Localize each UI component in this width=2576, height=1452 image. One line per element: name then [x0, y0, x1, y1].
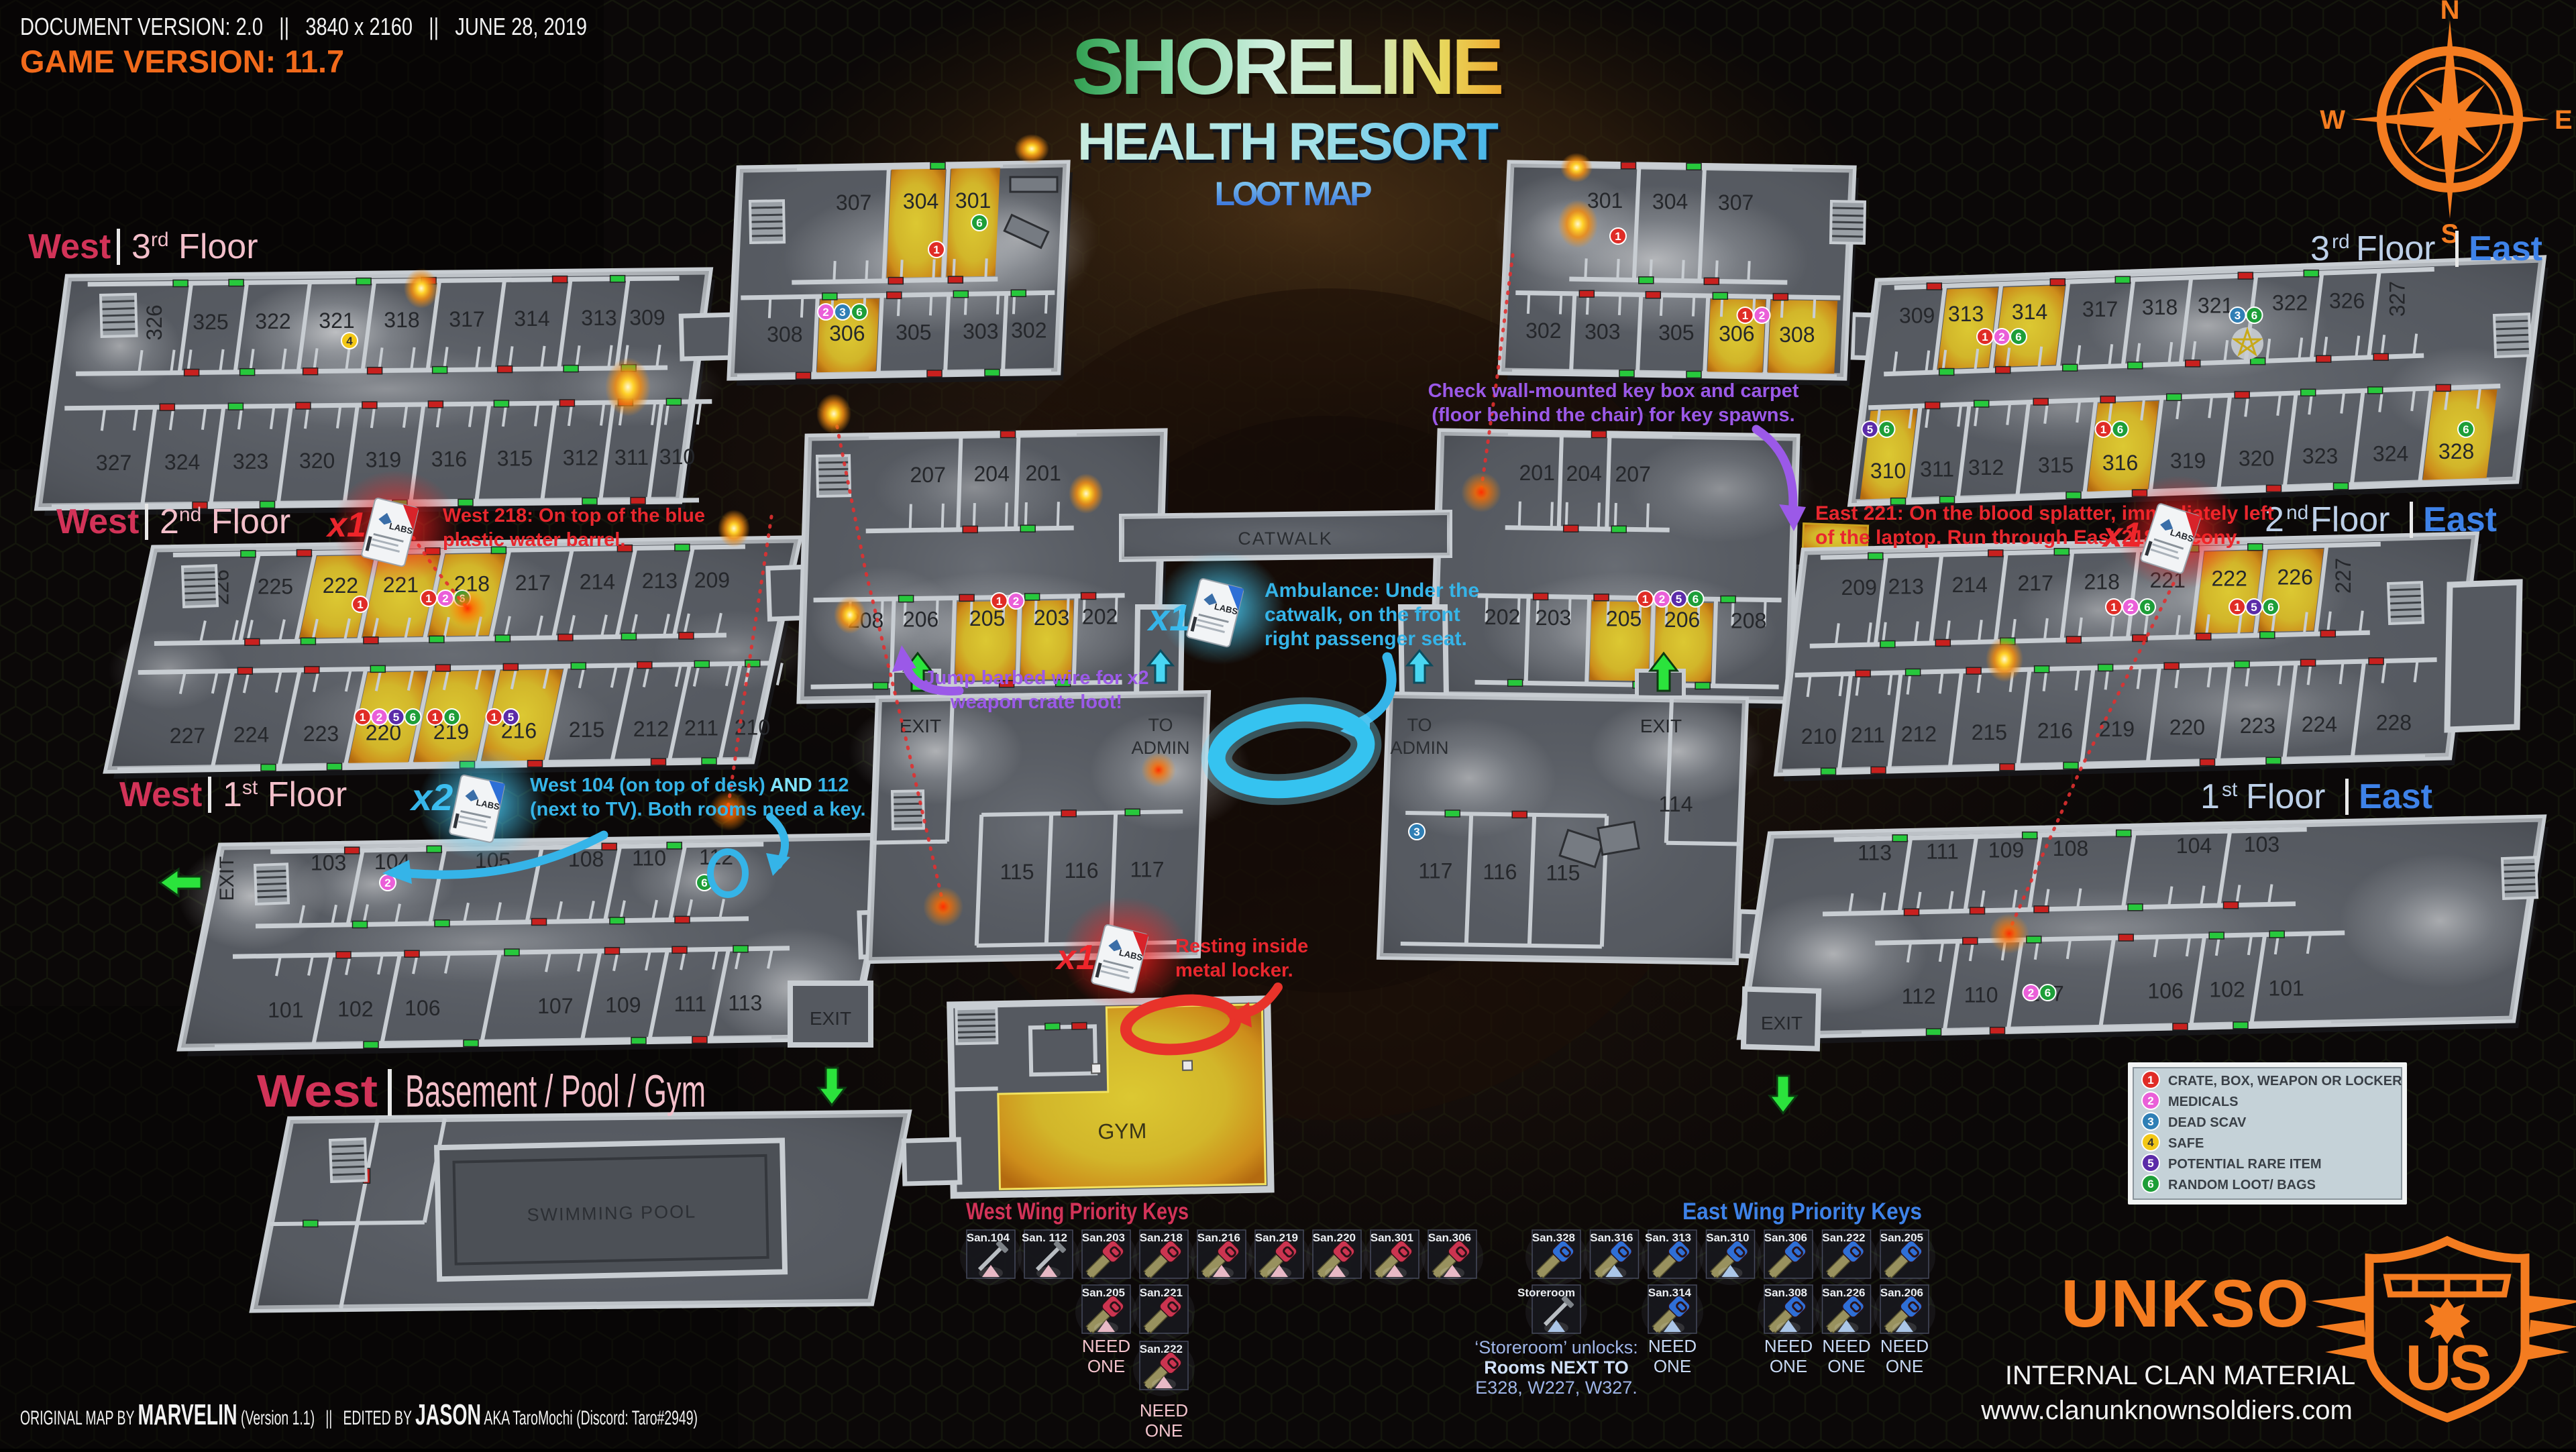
svg-text:6: 6: [2267, 601, 2273, 614]
svg-text:6: 6: [856, 306, 862, 319]
svg-text:322: 322: [2272, 291, 2308, 315]
svg-text:103: 103: [2244, 832, 2279, 856]
svg-text:TO: TO: [1407, 715, 1432, 735]
svg-text:4: 4: [346, 335, 353, 347]
svg-text:W: W: [2320, 105, 2345, 135]
svg-text:318: 318: [2142, 295, 2178, 319]
svg-text:314: 314: [2012, 300, 2047, 324]
svg-text:310: 310: [1870, 459, 1906, 483]
svg-text:EXIT: EXIT: [216, 856, 238, 901]
svg-text:207: 207: [910, 463, 946, 487]
svg-text:San.205: San.205: [1082, 1286, 1125, 1299]
svg-text:326: 326: [2329, 289, 2365, 313]
svg-text:313: 313: [581, 306, 616, 330]
svg-text:San.328: San.328: [1532, 1231, 1575, 1244]
svg-text:112: 112: [1902, 984, 1936, 1008]
svg-text:UNKSO: UNKSO: [2061, 1266, 2310, 1341]
svg-text:San.205: San.205: [1880, 1231, 1923, 1244]
svg-text:San.222: San.222: [1140, 1343, 1183, 1355]
svg-text:328: 328: [2438, 439, 2474, 463]
svg-text:111: 111: [1926, 839, 1959, 863]
svg-text:N: N: [2440, 0, 2460, 25]
svg-text:311: 311: [1920, 457, 1954, 482]
svg-text:117: 117: [1418, 859, 1452, 883]
svg-text:307: 307: [836, 190, 871, 215]
svg-text:Rooms NEXT TO: Rooms NEXT TO: [1484, 1357, 1629, 1378]
svg-text:213: 213: [642, 569, 678, 593]
svg-text:108: 108: [2053, 836, 2088, 860]
svg-text:312: 312: [563, 446, 598, 470]
svg-text:5: 5: [508, 711, 514, 724]
svg-text:307: 307: [1718, 190, 1754, 215]
svg-text:5: 5: [2251, 601, 2257, 614]
svg-text:2: 2: [1759, 309, 1765, 322]
svg-text:111: 111: [674, 992, 706, 1016]
svg-text:320: 320: [2239, 446, 2274, 470]
svg-text:210: 210: [735, 716, 770, 740]
svg-text:nd: nd: [2286, 502, 2308, 524]
svg-text:Resting inside: Resting inside: [1175, 936, 1308, 957]
svg-text:5: 5: [1676, 593, 1682, 606]
svg-text:201: 201: [1026, 461, 1061, 486]
svg-text:321: 321: [2198, 293, 2233, 317]
svg-text:SWIMMING POOL: SWIMMING POOL: [527, 1201, 696, 1225]
svg-text:(next to TV). Both rooms need: (next to TV). Both rooms need a key.: [530, 799, 866, 820]
svg-text:‘Storeroom’ unlocks:: ‘Storeroom’ unlocks:: [1474, 1337, 1638, 1357]
svg-text:Jump barbed wire for x2: Jump barbed wire for x2: [924, 667, 1148, 689]
svg-text:311: 311: [614, 445, 649, 469]
svg-text:2: 2: [1013, 595, 1019, 608]
svg-text:211: 211: [684, 716, 718, 740]
svg-text:NEED: NEED: [1764, 1336, 1813, 1356]
svg-text:318: 318: [384, 308, 419, 332]
svg-text:205: 205: [969, 606, 1005, 630]
svg-text:6: 6: [2045, 987, 2051, 999]
svg-text:106: 106: [2147, 979, 2183, 1003]
svg-text:310: 310: [659, 445, 695, 469]
svg-text:202: 202: [1485, 605, 1520, 629]
svg-text:ONE: ONE: [1145, 1420, 1183, 1441]
svg-text:ONE: ONE: [1827, 1356, 1865, 1376]
svg-text:DEAD SCAV: DEAD SCAV: [2168, 1115, 2247, 1130]
svg-text:207: 207: [1615, 462, 1651, 486]
svg-text:212: 212: [633, 717, 669, 741]
svg-text:1: 1: [933, 243, 939, 256]
svg-text:st: st: [2222, 779, 2238, 801]
svg-text:304: 304: [903, 189, 938, 213]
svg-text:303: 303: [1585, 319, 1620, 343]
svg-text:3: 3: [1413, 826, 1419, 838]
svg-text:317: 317: [449, 307, 484, 331]
svg-text:327: 327: [96, 451, 131, 475]
svg-text:MEDICALS: MEDICALS: [2168, 1095, 2238, 1109]
svg-text:East Wing Priority Keys: East Wing Priority Keys: [1682, 1198, 1922, 1225]
svg-text:SHORELINE: SHORELINE: [1072, 23, 1505, 111]
svg-text:1: 1: [2100, 423, 2106, 436]
svg-text:222: 222: [323, 573, 358, 598]
svg-text:San.219: San.219: [1255, 1231, 1298, 1244]
svg-text:316: 316: [431, 447, 467, 471]
svg-text:ONE: ONE: [1654, 1356, 1691, 1376]
svg-text:San.221: San.221: [1140, 1286, 1183, 1299]
svg-text:NEED: NEED: [1140, 1400, 1188, 1420]
svg-text:LOOT MAP: LOOT MAP: [1215, 175, 1373, 213]
svg-text:323: 323: [2302, 444, 2338, 468]
svg-text:1: 1: [2234, 601, 2240, 614]
svg-text:6: 6: [2463, 423, 2469, 436]
svg-text:313: 313: [1948, 302, 1984, 326]
svg-text:226: 226: [2277, 565, 2313, 589]
svg-text:right passenger seat.: right passenger seat.: [1265, 628, 1467, 650]
svg-text:107: 107: [537, 994, 573, 1018]
svg-text:223: 223: [303, 722, 339, 746]
svg-text:metal locker.: metal locker.: [1175, 960, 1293, 981]
svg-text:DOCUMENT VERSION: 2.0 || 3: DOCUMENT VERSION: 2.0 || 3840 x 2160 || …: [20, 13, 587, 40]
svg-text:San. 313: San. 313: [1645, 1231, 1691, 1244]
svg-text:215: 215: [569, 718, 604, 742]
svg-text:210: 210: [1801, 724, 1837, 748]
svg-text:209: 209: [1841, 575, 1877, 600]
svg-text:215: 215: [1972, 720, 2007, 744]
svg-text:1: 1: [2147, 1074, 2153, 1086]
svg-text:San. 112: San. 112: [1022, 1231, 1067, 1244]
svg-text:216: 216: [2037, 718, 2073, 742]
svg-text:San.226: San.226: [1822, 1286, 1865, 1299]
svg-text:209: 209: [694, 568, 730, 592]
svg-text:West 104 (on top of desk) AND: West 104 (on top of desk) AND 112: [530, 775, 849, 796]
svg-text:San.308: San.308: [1764, 1286, 1807, 1299]
svg-text:211: 211: [1851, 723, 1885, 747]
svg-text:217: 217: [2018, 571, 2053, 596]
svg-text:309: 309: [1899, 304, 1935, 328]
svg-text:6: 6: [2015, 331, 2021, 343]
svg-text:110: 110: [632, 846, 666, 870]
svg-text:1: 1: [2110, 601, 2116, 614]
svg-text:weapon crate loot!: weapon crate loot!: [950, 691, 1122, 713]
svg-text:San.203: San.203: [1082, 1231, 1125, 1244]
svg-text:220: 220: [2169, 716, 2205, 740]
svg-text:ADMIN: ADMIN: [1391, 738, 1449, 758]
svg-text:324: 324: [164, 450, 200, 474]
svg-text:6: 6: [449, 711, 455, 724]
svg-text:306: 306: [1719, 322, 1754, 346]
svg-text:304: 304: [1652, 190, 1688, 214]
svg-text:San.206: San.206: [1880, 1286, 1923, 1299]
svg-text:3: 3: [2310, 229, 2330, 268]
svg-text:1: 1: [996, 595, 1002, 608]
svg-text:San.222: San.222: [1822, 1231, 1865, 1244]
svg-text:227: 227: [170, 724, 205, 748]
svg-text:214: 214: [580, 570, 615, 594]
svg-text:INTERNAL CLAN MATERIAL: INTERNAL CLAN MATERIAL: [2005, 1361, 2355, 1390]
svg-text:rd: rd: [2332, 231, 2350, 253]
svg-text:Floor: Floor: [2310, 500, 2390, 539]
svg-text:ONE: ONE: [1886, 1356, 1923, 1376]
svg-text:1: 1: [1742, 309, 1748, 322]
svg-text:1: 1: [425, 592, 431, 605]
svg-text:308: 308: [1779, 323, 1815, 347]
svg-text:314: 314: [514, 306, 549, 331]
svg-text:327: 327: [2385, 281, 2410, 317]
svg-text:312: 312: [1968, 455, 2004, 480]
svg-text:West 218: On top of the blue: West 218: On top of the blue: [443, 505, 705, 526]
svg-text:317: 317: [2082, 297, 2118, 321]
svg-text:GYM: GYM: [1097, 1119, 1147, 1143]
svg-text:225: 225: [258, 575, 293, 599]
svg-text:325: 325: [193, 310, 228, 334]
svg-text:Floor: Floor: [2246, 777, 2325, 816]
svg-text:113: 113: [728, 991, 762, 1015]
svg-text:6: 6: [976, 217, 982, 229]
svg-text:5: 5: [2147, 1157, 2153, 1170]
svg-text:HEALTH RESORT: HEALTH RESORT: [1077, 111, 1499, 171]
svg-text:228: 228: [2376, 710, 2412, 734]
svg-text:San.310: San.310: [1706, 1231, 1749, 1244]
svg-text:West: West: [56, 502, 139, 541]
svg-text:West Wing Priority Keys: West Wing Priority Keys: [966, 1198, 1189, 1225]
svg-text:101: 101: [268, 998, 303, 1022]
svg-text:326: 326: [142, 304, 166, 340]
svg-text:2: 2: [376, 711, 382, 724]
svg-text:San.301: San.301: [1371, 1231, 1413, 1244]
svg-text:102: 102: [2209, 977, 2245, 1001]
svg-text:US: US: [2405, 1332, 2489, 1404]
svg-text:315: 315: [2038, 453, 2074, 478]
svg-text:CRATE, BOX, WEAPON OR LOCKER: CRATE, BOX, WEAPON OR LOCKER: [2168, 1074, 2402, 1088]
svg-text:102: 102: [337, 997, 373, 1021]
svg-text:EXIT: EXIT: [1640, 716, 1682, 736]
svg-text:1: 1: [1615, 230, 1621, 243]
svg-text:109: 109: [605, 993, 641, 1017]
svg-text:4: 4: [2147, 1136, 2154, 1149]
svg-text:204: 204: [974, 462, 1010, 486]
svg-text:3: 3: [839, 306, 845, 319]
svg-text:1: 1: [1642, 593, 1648, 606]
svg-text:205: 205: [1606, 607, 1642, 631]
svg-text:319: 319: [2170, 449, 2206, 473]
svg-text:3: 3: [2235, 309, 2241, 322]
svg-text:308: 308: [767, 323, 802, 347]
svg-text:309: 309: [629, 305, 665, 329]
svg-text:www.clanunknownsoldiers.com: www.clanunknownsoldiers.com: [1980, 1396, 2353, 1425]
svg-text:Floor: Floor: [2356, 229, 2435, 268]
svg-text:206: 206: [903, 608, 938, 632]
svg-text:227: 227: [2331, 558, 2355, 594]
svg-text:302: 302: [1011, 319, 1046, 343]
svg-text:6: 6: [1884, 423, 1890, 436]
svg-text:5: 5: [393, 711, 399, 724]
svg-text:218: 218: [2084, 569, 2120, 594]
svg-text:2: 2: [2028, 987, 2034, 999]
svg-text:321: 321: [319, 309, 354, 333]
svg-text:East: East: [2469, 229, 2542, 268]
svg-text:6: 6: [2144, 601, 2150, 614]
svg-text:5: 5: [1867, 423, 1873, 436]
svg-text:E: E: [2555, 105, 2573, 135]
svg-text:208: 208: [1731, 608, 1766, 632]
svg-text:2: 2: [2147, 1095, 2153, 1107]
svg-text:224: 224: [233, 723, 269, 747]
svg-text:ONE: ONE: [1087, 1356, 1125, 1376]
svg-text:6: 6: [701, 877, 707, 889]
svg-text:San.220: San.220: [1313, 1231, 1356, 1244]
svg-text:SAFE: SAFE: [2168, 1136, 2204, 1151]
svg-text:West: West: [257, 1066, 378, 1117]
svg-text:212: 212: [1901, 722, 1937, 746]
svg-text:109: 109: [1988, 838, 2024, 862]
svg-text:116: 116: [1483, 860, 1517, 884]
svg-text:114: 114: [1658, 792, 1693, 816]
svg-text:213: 213: [1888, 574, 1924, 598]
svg-text:2: 2: [1998, 331, 2004, 343]
svg-text:223: 223: [2240, 714, 2275, 738]
svg-text:West: West: [119, 775, 202, 814]
svg-text:203: 203: [1536, 606, 1571, 630]
svg-text:1: 1: [360, 711, 366, 724]
svg-text:6: 6: [2251, 309, 2257, 322]
svg-text:322: 322: [255, 309, 290, 333]
svg-text:113: 113: [1858, 841, 1892, 865]
svg-text:202: 202: [1082, 605, 1118, 629]
svg-text:305: 305: [1658, 321, 1694, 345]
svg-text:San.306: San.306: [1428, 1231, 1471, 1244]
svg-text:2: 2: [442, 592, 448, 605]
svg-text:RANDOM LOOT/ BAGS: RANDOM LOOT/ BAGS: [2168, 1178, 2316, 1192]
svg-text:2: 2: [822, 306, 828, 319]
svg-text:301: 301: [955, 188, 991, 213]
svg-text:1: 1: [1982, 331, 1988, 343]
svg-text:315: 315: [497, 447, 533, 471]
svg-text:3: 3: [2147, 1115, 2153, 1128]
svg-text:324: 324: [2373, 441, 2408, 465]
svg-text:319: 319: [366, 448, 401, 472]
svg-text:EXIT: EXIT: [1761, 1013, 1803, 1034]
svg-text:206: 206: [1664, 608, 1700, 632]
svg-text:San.314: San.314: [1648, 1286, 1692, 1299]
svg-text:316: 316: [2102, 451, 2138, 475]
svg-text:San.316: San.316: [1590, 1231, 1633, 1244]
svg-text:203: 203: [1034, 606, 1069, 630]
svg-text:219: 219: [2099, 717, 2135, 741]
svg-text:6: 6: [2117, 423, 2123, 436]
svg-text:214: 214: [1952, 573, 1988, 597]
svg-text:101: 101: [2268, 976, 2304, 1001]
svg-text:plastic water barrel.: plastic water barrel.: [443, 529, 625, 551]
svg-text:1: 1: [432, 711, 438, 724]
svg-text:GAME VERSION: 11.7: GAME VERSION: 11.7: [20, 44, 344, 79]
svg-text:West: West: [28, 227, 111, 266]
svg-text:Check wall-mounted key box and: Check wall-mounted key box and carpet: [1428, 380, 1799, 402]
svg-text:NEED: NEED: [1082, 1336, 1130, 1356]
svg-text:East: East: [2359, 777, 2432, 816]
svg-text:San.104: San.104: [967, 1231, 1010, 1244]
svg-text:3rd Floor: 3rd Floor: [131, 227, 258, 266]
svg-text:103: 103: [311, 851, 346, 875]
svg-text:302: 302: [1525, 319, 1561, 343]
svg-text:San.218: San.218: [1140, 1231, 1183, 1244]
svg-text:115: 115: [1546, 860, 1580, 885]
svg-text:217: 217: [515, 571, 551, 595]
svg-text:201: 201: [1519, 461, 1555, 485]
svg-text:204: 204: [1566, 461, 1602, 486]
svg-text:E328, W227, W327.: E328, W227, W327.: [1475, 1378, 1638, 1398]
svg-text:323: 323: [233, 449, 268, 473]
svg-text:East: East: [2423, 500, 2497, 539]
svg-text:POTENTIAL RARE ITEM: POTENTIAL RARE ITEM: [2168, 1157, 2322, 1172]
svg-text:NEED: NEED: [1880, 1336, 1929, 1356]
svg-text:1: 1: [2200, 777, 2220, 816]
svg-text:303: 303: [963, 319, 998, 343]
svg-text:106: 106: [405, 996, 440, 1020]
svg-text:224: 224: [2302, 712, 2337, 736]
svg-text:CATWALK: CATWALK: [1238, 528, 1333, 549]
svg-text:1st Floor: 1st Floor: [223, 775, 347, 814]
svg-text:6: 6: [2147, 1178, 2153, 1190]
svg-text:EXIT: EXIT: [900, 716, 941, 736]
svg-text:115: 115: [1000, 860, 1034, 884]
svg-text:1: 1: [491, 711, 497, 724]
svg-text:catwalk, on the front: catwalk, on the front: [1265, 604, 1460, 626]
svg-text:(floor behind the chair) for k: (floor behind the chair) for key spawns.: [1432, 404, 1794, 426]
svg-text:116: 116: [1064, 858, 1098, 883]
svg-text:1: 1: [357, 598, 363, 611]
svg-text:110: 110: [1964, 983, 1998, 1007]
svg-text:ONE: ONE: [1770, 1356, 1807, 1376]
svg-text:104: 104: [2176, 834, 2212, 858]
svg-text:305: 305: [896, 321, 931, 345]
svg-text:Ambulance: Under the: Ambulance: Under the: [1265, 579, 1479, 602]
svg-text:6: 6: [410, 711, 416, 724]
svg-text:2: 2: [1659, 593, 1665, 606]
svg-text:2: 2: [384, 877, 390, 889]
svg-text:San.306: San.306: [1764, 1231, 1807, 1244]
svg-text:Basement / Pool / Gym: Basement / Pool / Gym: [405, 1066, 706, 1117]
svg-text:2: 2: [2127, 601, 2133, 614]
svg-text:320: 320: [299, 449, 335, 473]
svg-text:6: 6: [1693, 593, 1699, 606]
svg-text:117: 117: [1130, 858, 1164, 882]
svg-text:NEED: NEED: [1648, 1336, 1697, 1356]
svg-text:San.216: San.216: [1197, 1231, 1240, 1244]
svg-text:NEED: NEED: [1822, 1336, 1870, 1356]
svg-text:EXIT: EXIT: [810, 1008, 851, 1029]
svg-text:TO: TO: [1148, 715, 1173, 735]
svg-text:306: 306: [829, 321, 865, 345]
